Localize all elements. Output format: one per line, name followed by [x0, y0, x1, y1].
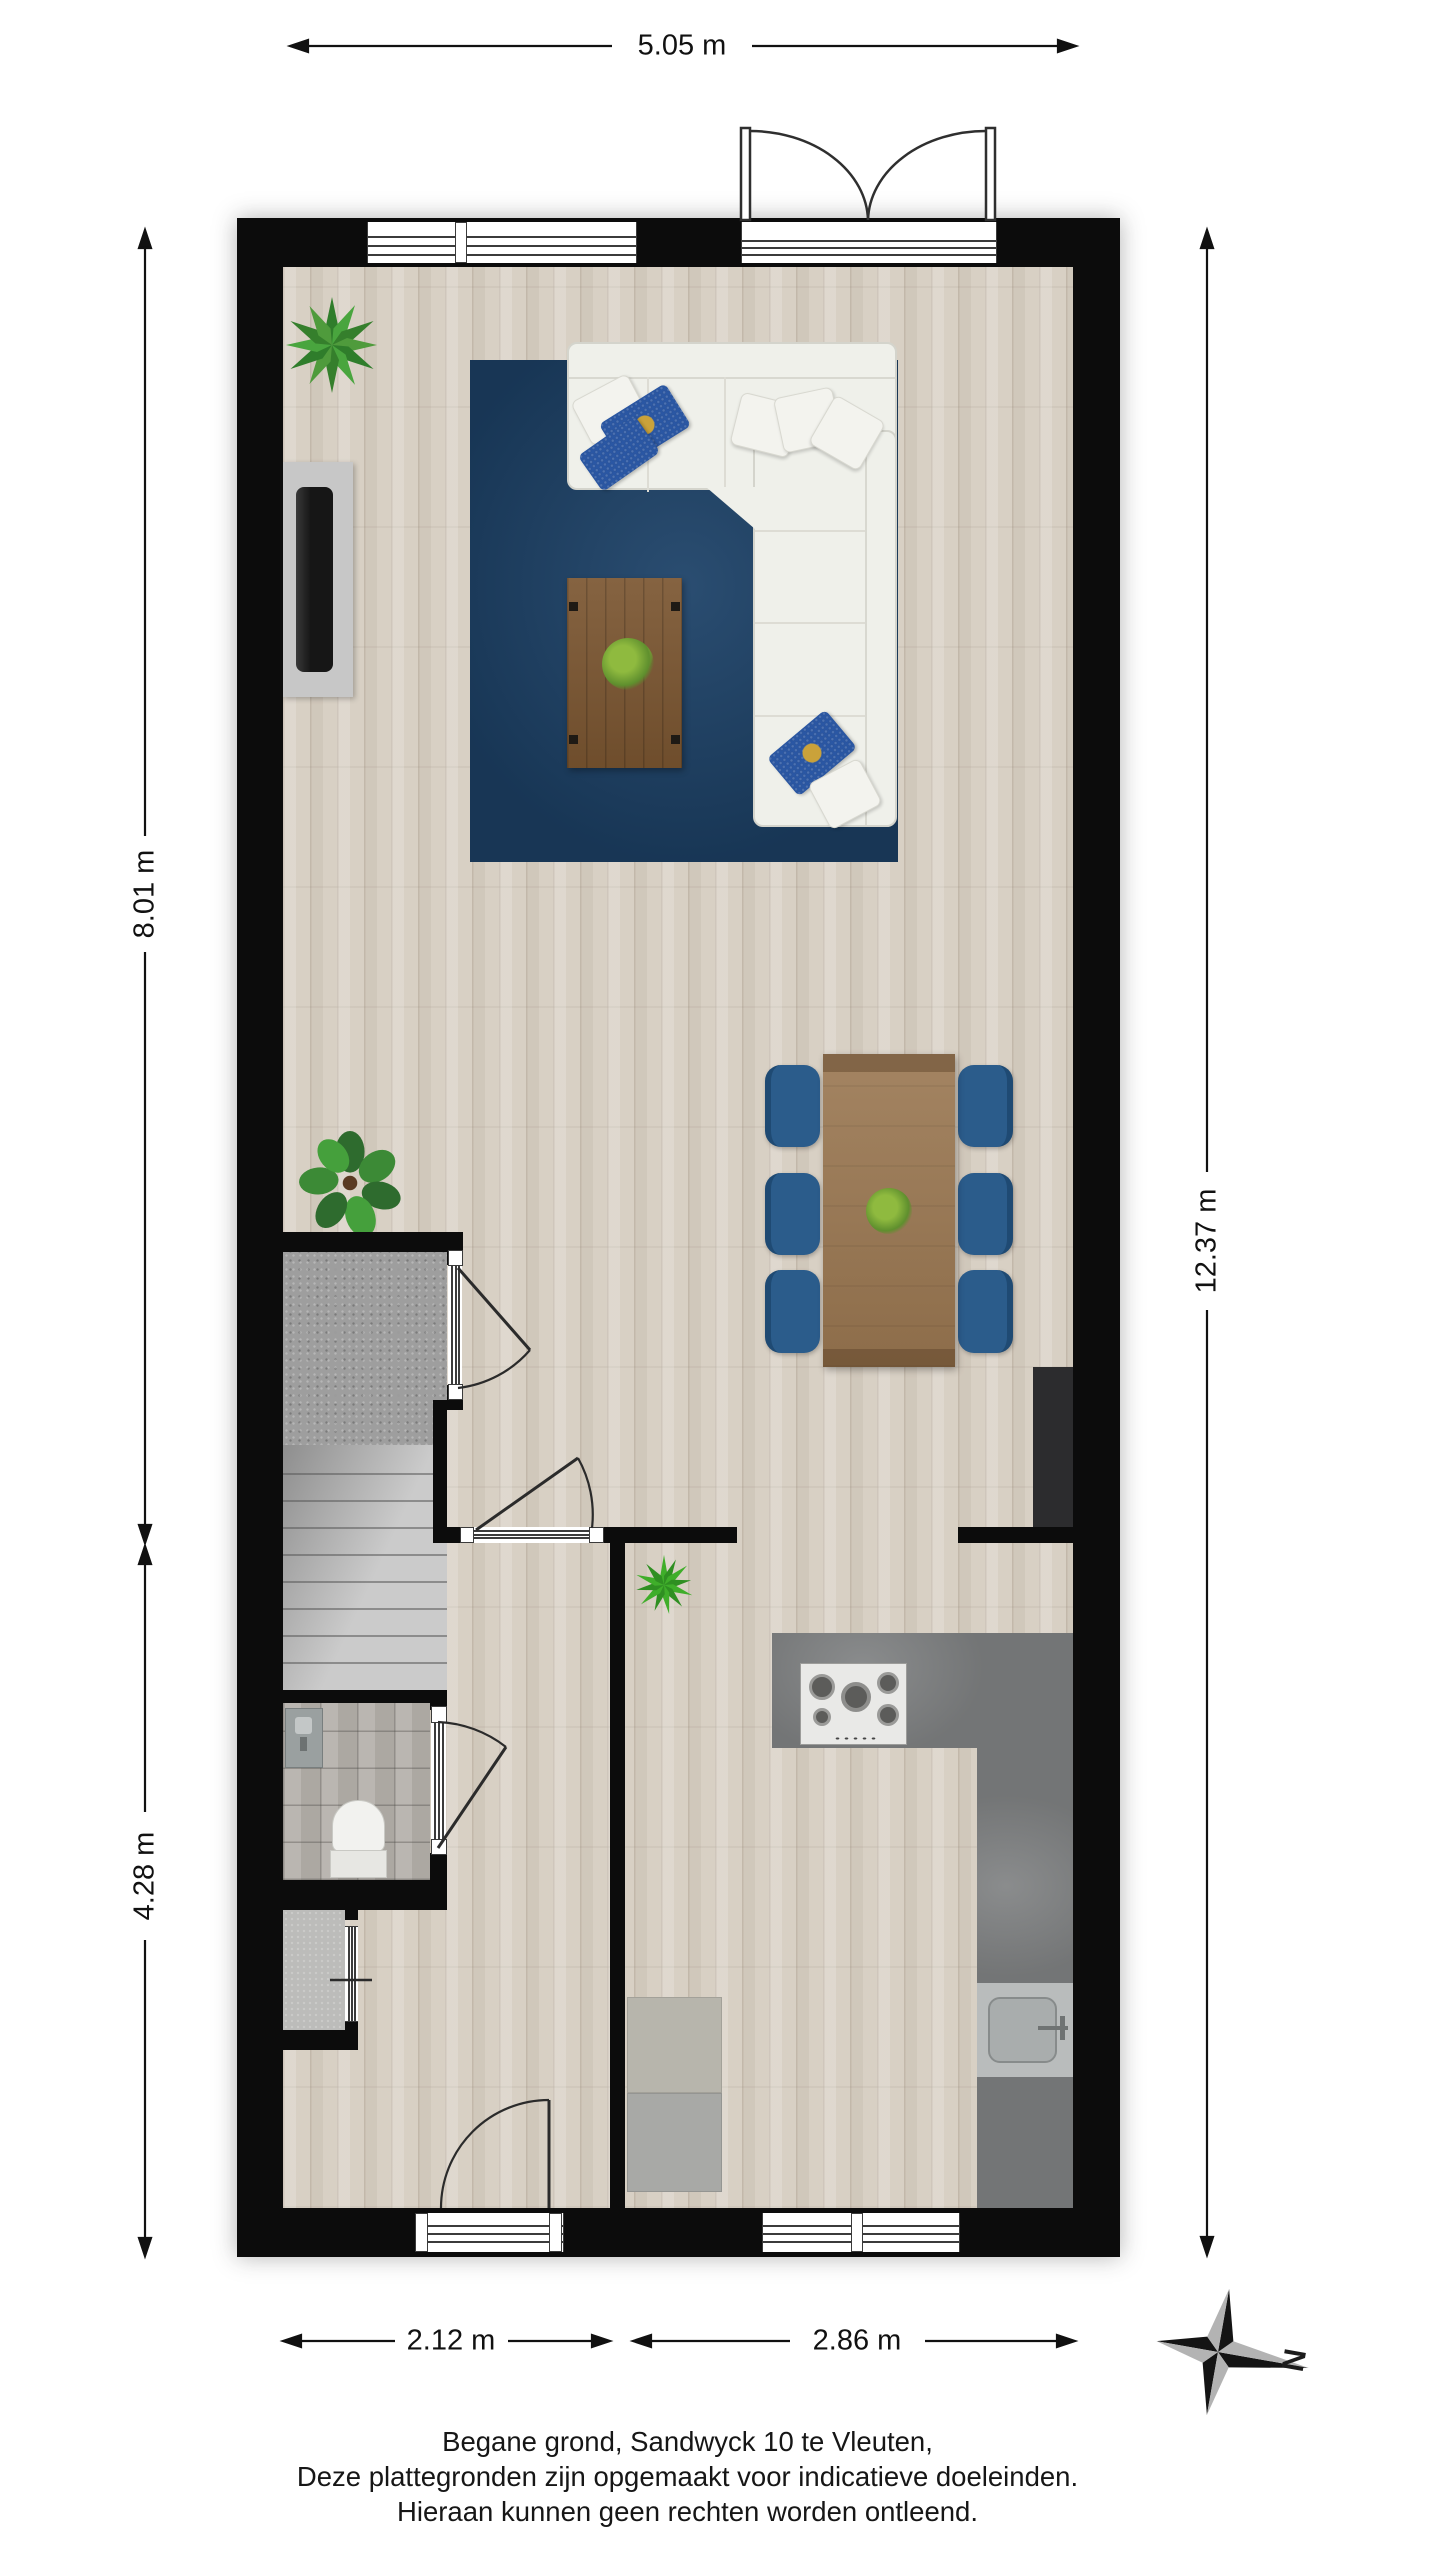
dim-right-label: 12.37 m	[1191, 1183, 1224, 1300]
dim-left-upper-label: 8.01 m	[129, 844, 162, 945]
door-hall-swing	[476, 1458, 593, 1530]
french-door-leaf-left	[741, 128, 750, 220]
french-doors	[741, 128, 995, 220]
french-door-leaf-right	[986, 128, 995, 220]
caption-line-3: Hieraan kunnen geen rechten worden ontle…	[0, 2496, 1375, 2528]
dim-left-lower-label: 4.28 m	[129, 1826, 162, 1927]
french-door-arc-left	[750, 131, 868, 220]
dim-bottom-left-label: 2.12 m	[401, 2325, 502, 2358]
dim-top-label: 5.05 m	[632, 30, 733, 63]
door-front-swing	[441, 2100, 549, 2208]
floorplan-page: 5.05 m 8.01 m 4.28 m 12.37 m 2.12 m 2.86…	[0, 0, 1440, 2560]
dimension-lines	[139, 40, 1213, 2347]
door-toilet-swing	[438, 1722, 506, 1848]
caption-line-2: Deze plattegronden zijn opgemaakt voor i…	[0, 2461, 1375, 2493]
dim-bottom-right-label: 2.86 m	[807, 2325, 908, 2358]
door-stairs-swing	[458, 1268, 530, 1388]
caption-line-1: Begane grond, Sandwyck 10 te Vleuten,	[0, 2426, 1375, 2458]
french-door-arc-right	[868, 131, 986, 220]
annotation-overlay	[0, 0, 1440, 2560]
